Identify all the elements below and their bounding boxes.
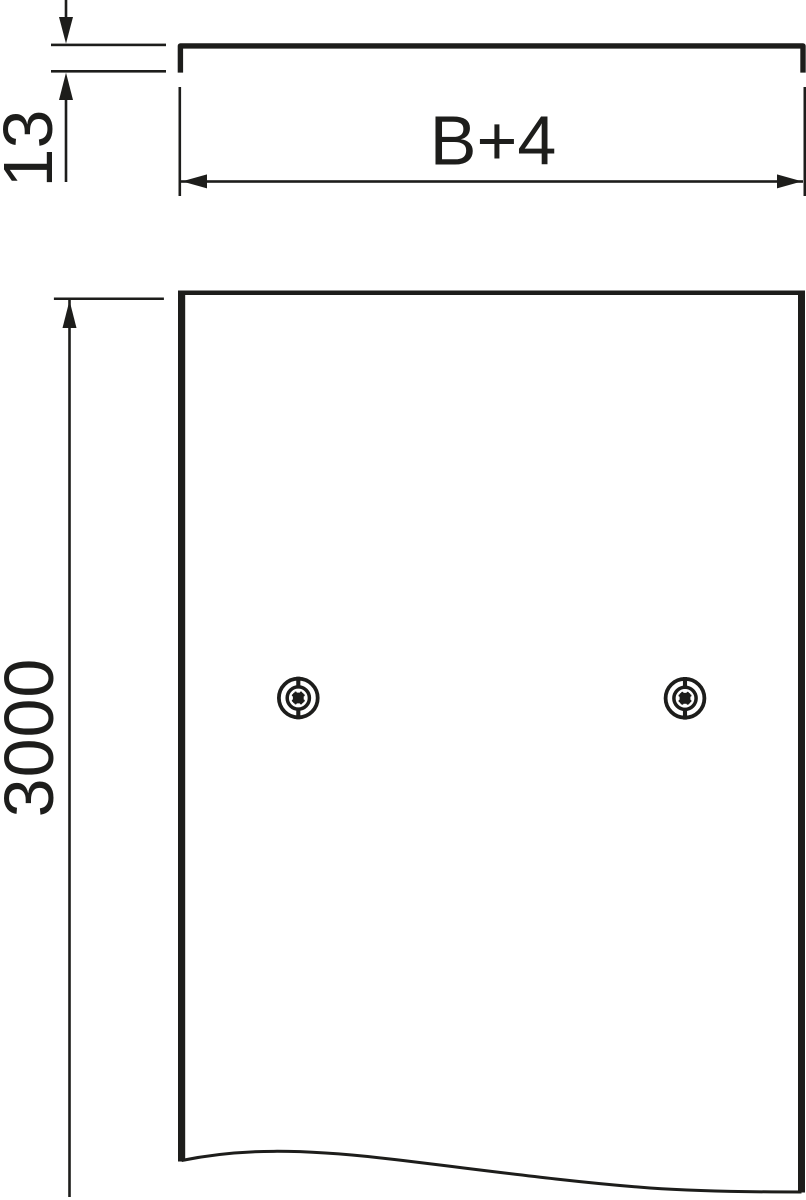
svg-text:13: 13	[0, 110, 67, 188]
svg-text:3000: 3000	[0, 658, 68, 818]
svg-text:B+4: B+4	[430, 102, 557, 180]
